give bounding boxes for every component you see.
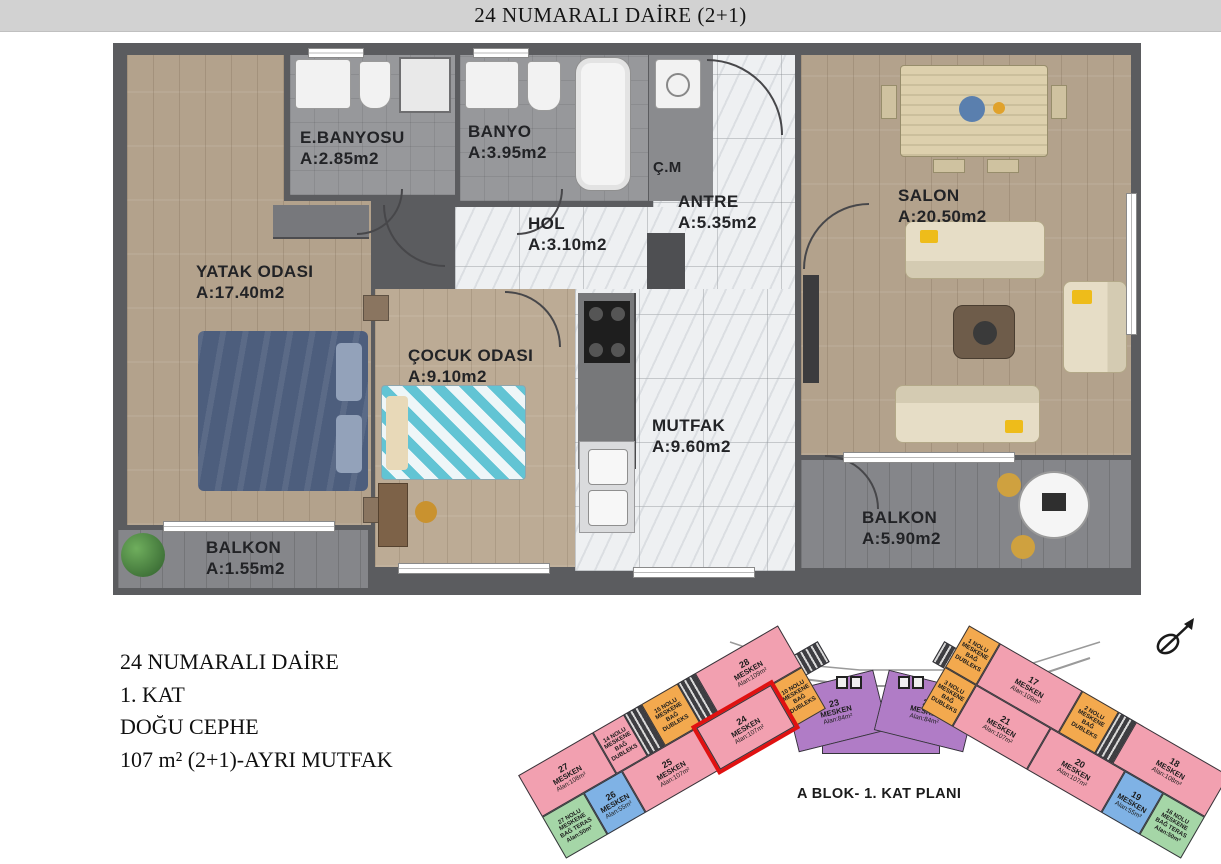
burner-icon [611, 307, 625, 321]
nightstand [363, 295, 389, 321]
sink-fixture [465, 61, 519, 109]
sofa [905, 221, 1045, 279]
wardrobe [273, 205, 369, 239]
laptop-icon [1042, 493, 1066, 511]
tv-unit [803, 275, 819, 383]
sink-fixture [295, 59, 351, 109]
apartment-info-block: 24 NUMARALI DAİRE 1. KAT DOĞU CEPHE 107 … [120, 646, 393, 776]
label-ebanyo: E.BANYOSU A:2.85m2 [300, 128, 405, 169]
window [308, 48, 364, 58]
sink-basin [588, 490, 628, 526]
label-salon: SALON A:20.50m2 [898, 186, 987, 227]
burner-icon [589, 343, 603, 357]
kitchen-sink-unit [579, 441, 635, 533]
label-cm: Ç.M [653, 159, 682, 177]
stove [584, 301, 630, 363]
bathtub-fixture [575, 57, 631, 191]
chair [1051, 85, 1067, 119]
pillow [336, 343, 362, 401]
toilet-fixture [359, 61, 391, 109]
chair [1011, 535, 1035, 559]
yellow-pillow [920, 230, 938, 243]
chair [933, 159, 965, 173]
label-antre: ANTRE A:5.35m2 [678, 192, 757, 233]
armchair [1063, 281, 1127, 373]
burner-icon [589, 307, 603, 321]
floor-plan: E.BANYOSU A:2.85m2 BANYO A:3.95m2 Ç.M AN… [113, 43, 1141, 595]
label-yatak: YATAK ODASI A:17.40m2 [196, 262, 313, 303]
pillow [386, 396, 408, 470]
kids-bed [381, 385, 526, 480]
window [398, 563, 550, 574]
window [843, 452, 1015, 463]
info-line-1: 24 NUMARALI DAİRE [120, 646, 393, 679]
shaft [647, 233, 685, 289]
label-cocuk: ÇOCUK ODASI A:9.10m2 [408, 346, 533, 387]
title-bar: 24 NUMARALI DAİRE (2+1) [0, 0, 1221, 32]
tray-icon [973, 321, 997, 345]
table-decor [959, 96, 985, 122]
chair [415, 501, 437, 523]
sofa [895, 385, 1040, 443]
yellow-throw [1072, 290, 1092, 304]
yellow-pillow [1005, 420, 1023, 433]
washer-door-icon [666, 73, 690, 97]
bed [198, 331, 368, 491]
elevator-icons [836, 676, 862, 689]
chair [997, 473, 1021, 497]
desk [378, 483, 408, 547]
window [633, 567, 755, 578]
plant [121, 533, 165, 577]
page-title: 24 NUMARALI DAİRE (2+1) [474, 3, 746, 28]
siteplan-caption: A BLOK- 1. KAT PLANI [797, 786, 961, 802]
label-mutfak: MUTFAK A:9.60m2 [652, 416, 731, 457]
chair [881, 85, 897, 119]
info-line-3: DOĞU CEPHE [120, 711, 393, 744]
label-balkon-big: BALKON A:5.90m2 [862, 508, 941, 549]
burner-icon [611, 343, 625, 357]
label-balkon-small: BALKON A:1.55m2 [206, 538, 285, 579]
table-decor [993, 102, 1005, 114]
page: 24 NUMARALI DAİRE (2+1) [0, 0, 1221, 864]
pillow [336, 415, 362, 473]
window [1126, 193, 1137, 335]
siteplan-left-wing: 27 MESKEN Alan:108m² 14 NOLU MESKENE BAĞ… [518, 625, 826, 858]
label-hol: HOL A:3.10m2 [528, 214, 607, 255]
washing-machine [655, 59, 701, 109]
label-banyo: BANYO A:3.95m2 [468, 122, 547, 163]
sink-basin [588, 449, 628, 485]
info-line-4: 107 m² (2+1)-AYRI MUTFAK [120, 744, 393, 777]
elevator-icons [898, 676, 924, 689]
coffee-table [953, 305, 1015, 359]
window [163, 521, 335, 532]
info-line-2: 1. KAT [120, 679, 393, 712]
dining-table [900, 65, 1048, 157]
shower-fixture [399, 57, 451, 113]
toilet-fixture [527, 61, 561, 111]
window [473, 48, 529, 58]
balcony-table [1018, 471, 1090, 539]
chair [987, 159, 1019, 173]
